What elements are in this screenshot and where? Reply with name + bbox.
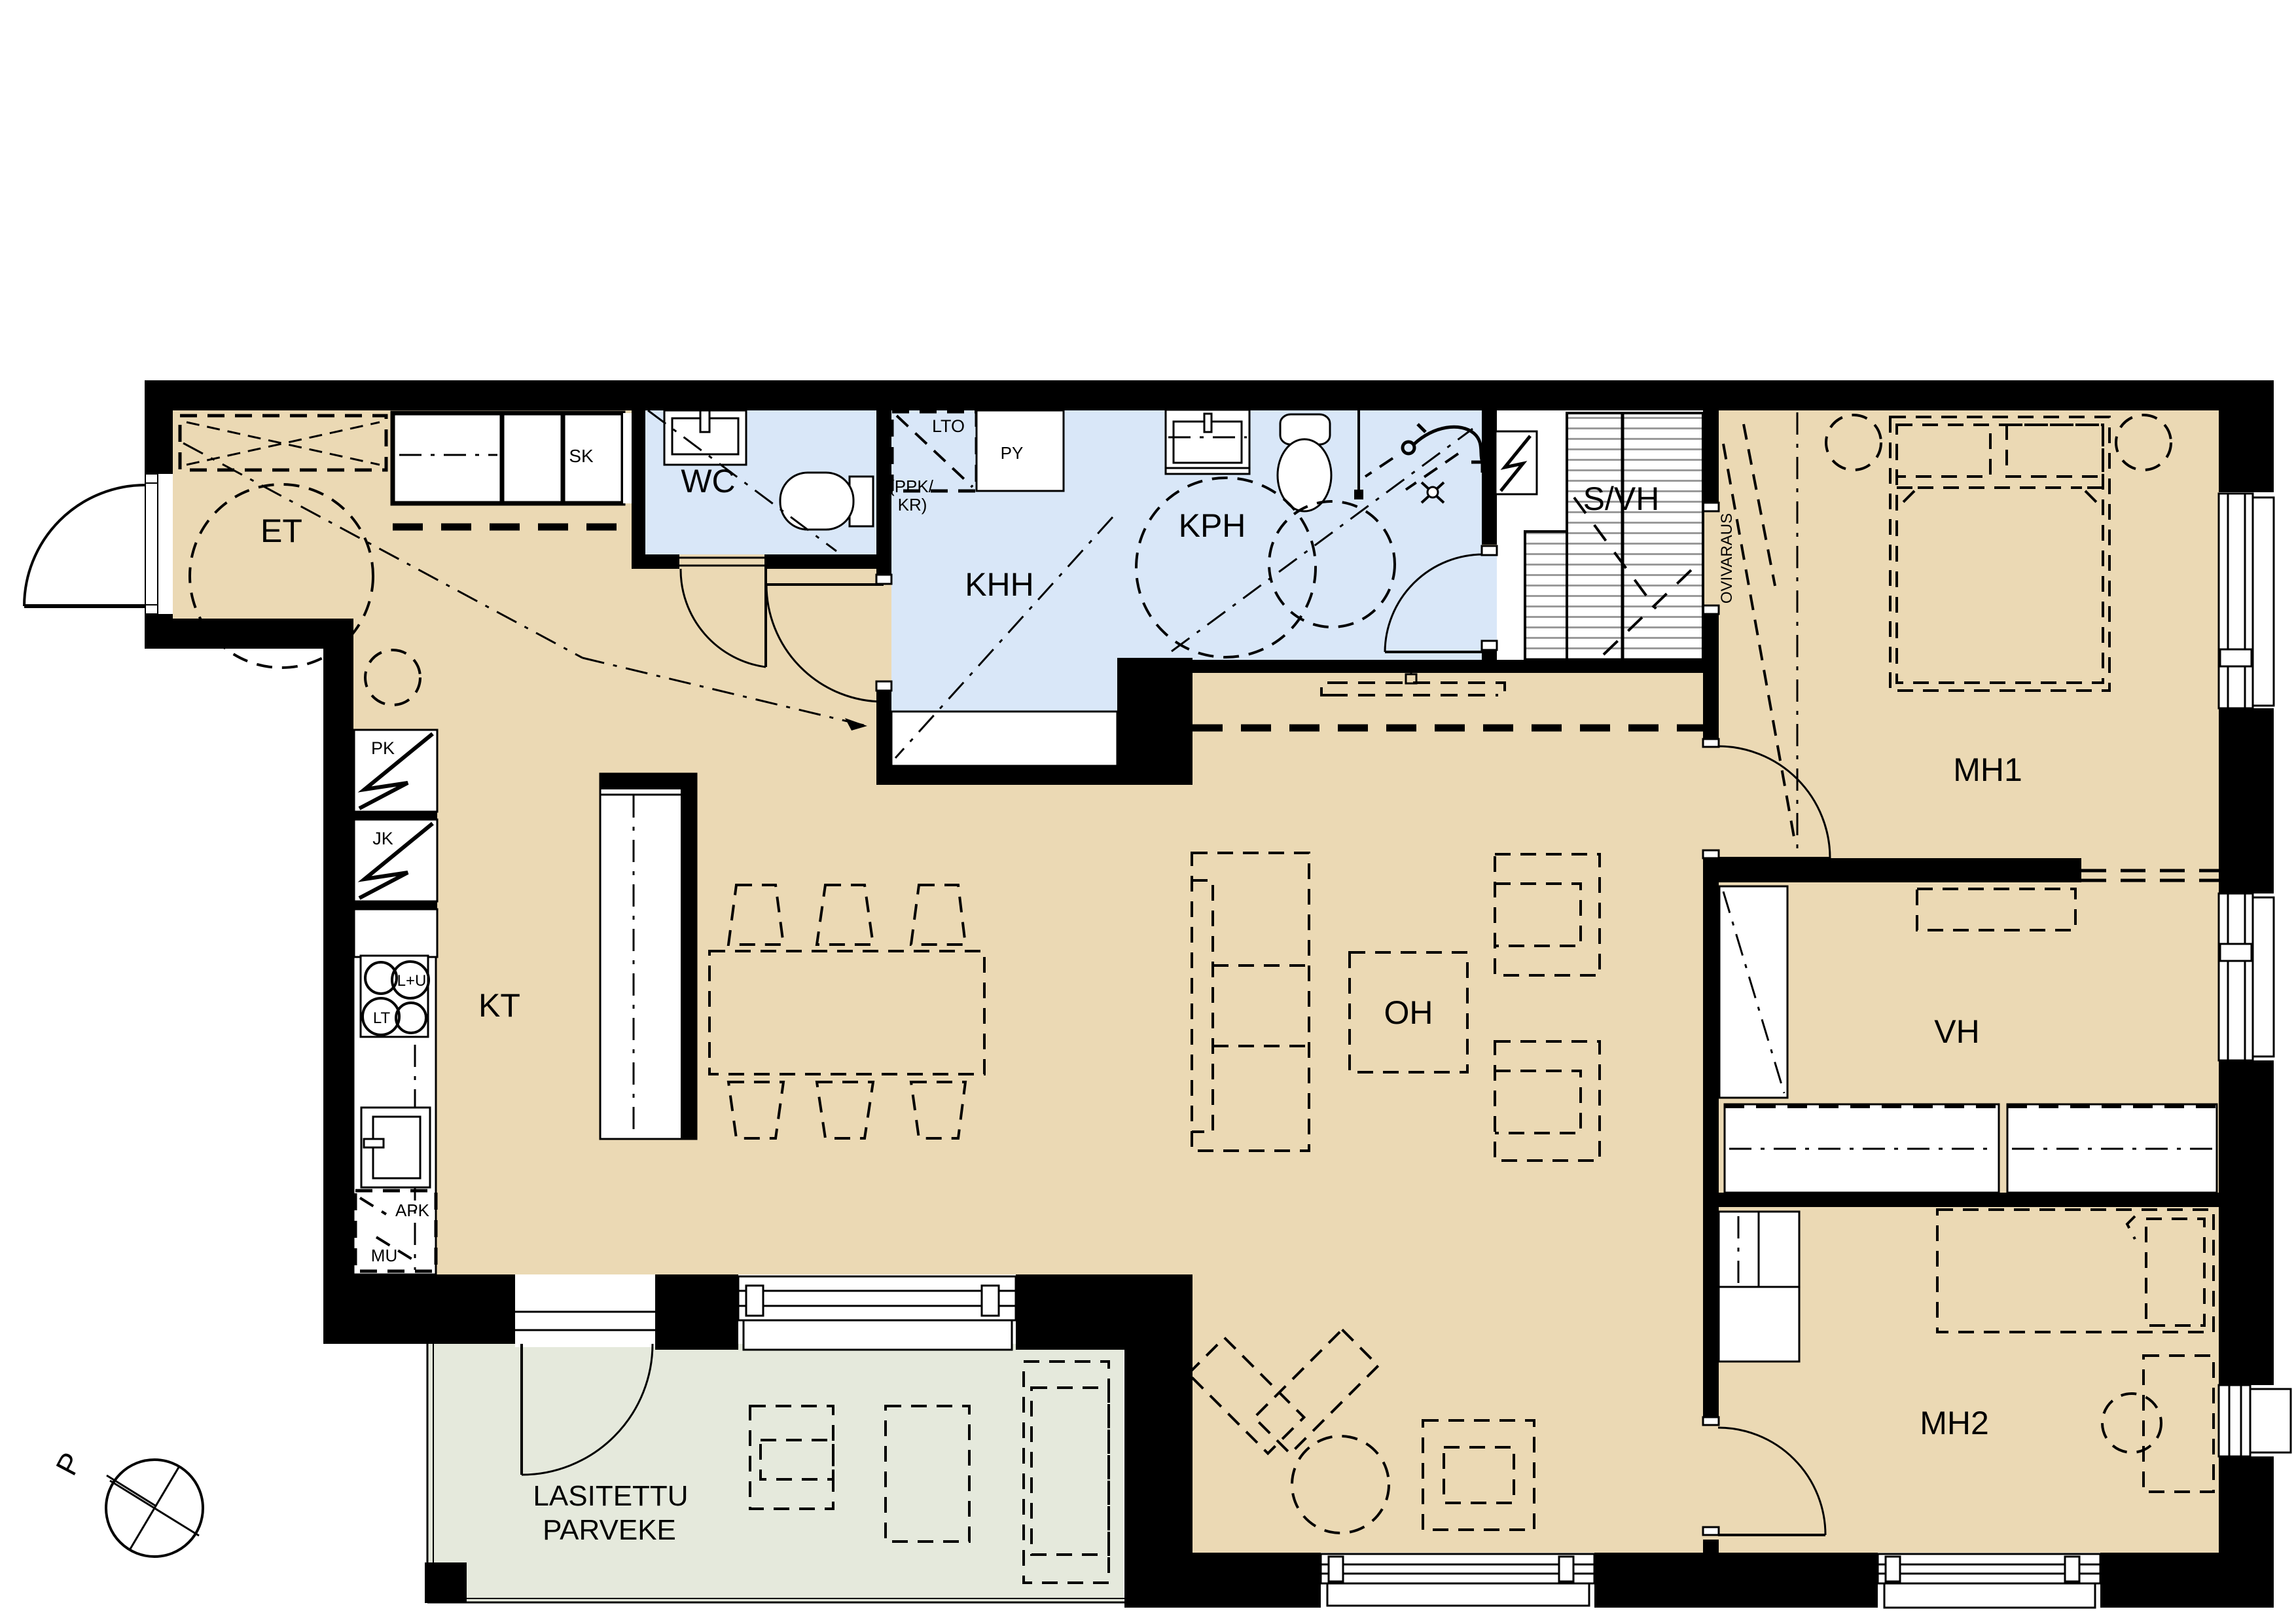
svg-text:WC: WC [681, 463, 735, 499]
svg-text:L+U: L+U [397, 972, 427, 990]
svg-text:JK: JK [372, 829, 393, 848]
svg-text:KR): KR) [898, 495, 927, 514]
svg-text:OH: OH [1384, 994, 1433, 1031]
svg-text:KPH: KPH [1179, 507, 1246, 544]
svg-text:MH1: MH1 [1953, 751, 2022, 788]
svg-text:VH: VH [1934, 1013, 1979, 1050]
svg-text:APK: APK [395, 1200, 430, 1220]
svg-text:SK: SK [569, 446, 594, 466]
svg-text:MH2: MH2 [1920, 1405, 1989, 1441]
svg-text:MU: MU [371, 1246, 397, 1265]
svg-text:S/VH: S/VH [1583, 480, 1660, 517]
svg-text:OVIVARAUS: OVIVARAUS [1718, 513, 1736, 604]
svg-text:PK: PK [371, 738, 395, 758]
svg-text:LASITETTU: LASITETTU [533, 1480, 688, 1512]
svg-text:KHH: KHH [965, 566, 1034, 603]
svg-text:KT: KT [478, 987, 520, 1024]
svg-text:LTO: LTO [932, 416, 965, 436]
svg-text:PARVEKE: PARVEKE [543, 1514, 676, 1546]
svg-text:P: P [49, 1447, 88, 1481]
svg-text:LT: LT [373, 1009, 391, 1027]
svg-text:(PPK/: (PPK/ [889, 477, 934, 496]
svg-text:PY: PY [1001, 443, 1024, 463]
svg-text:ET: ET [260, 513, 302, 549]
